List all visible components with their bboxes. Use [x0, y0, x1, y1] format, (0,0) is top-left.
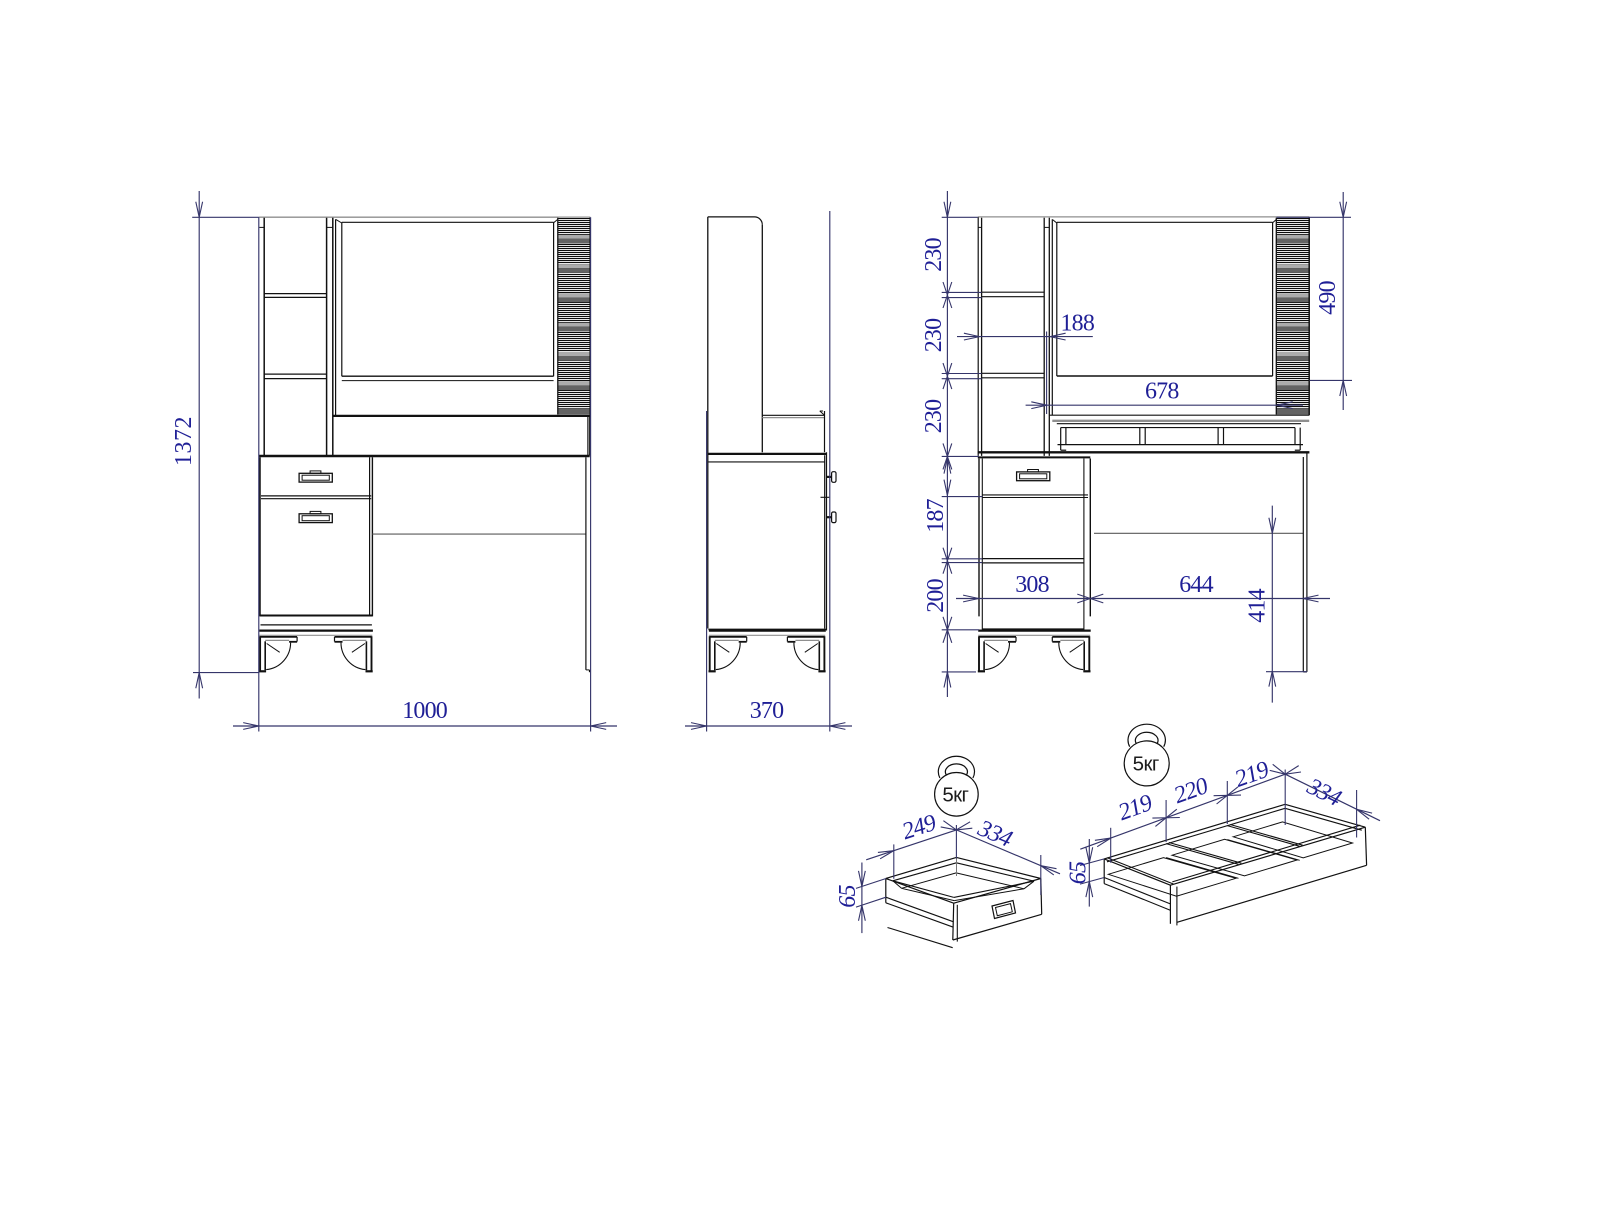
svg-text:1000: 1000 [402, 698, 448, 724]
svg-text:370: 370 [750, 698, 784, 724]
svg-text:230: 230 [921, 237, 947, 271]
svg-text:200: 200 [923, 578, 949, 612]
svg-text:65: 65 [835, 885, 861, 908]
svg-text:5кг: 5кг [1133, 753, 1159, 776]
svg-text:230: 230 [921, 399, 947, 433]
svg-text:65: 65 [1065, 861, 1091, 884]
svg-text:490: 490 [1315, 280, 1341, 314]
svg-text:187: 187 [923, 498, 949, 532]
svg-text:678: 678 [1145, 379, 1179, 405]
svg-text:5кг: 5кг [942, 784, 968, 807]
svg-text:1372: 1372 [171, 416, 197, 466]
svg-text:188: 188 [1060, 311, 1094, 337]
svg-text:308: 308 [1015, 572, 1049, 598]
svg-text:644: 644 [1179, 572, 1213, 598]
svg-text:230: 230 [921, 318, 947, 352]
svg-text:414: 414 [1244, 588, 1270, 622]
